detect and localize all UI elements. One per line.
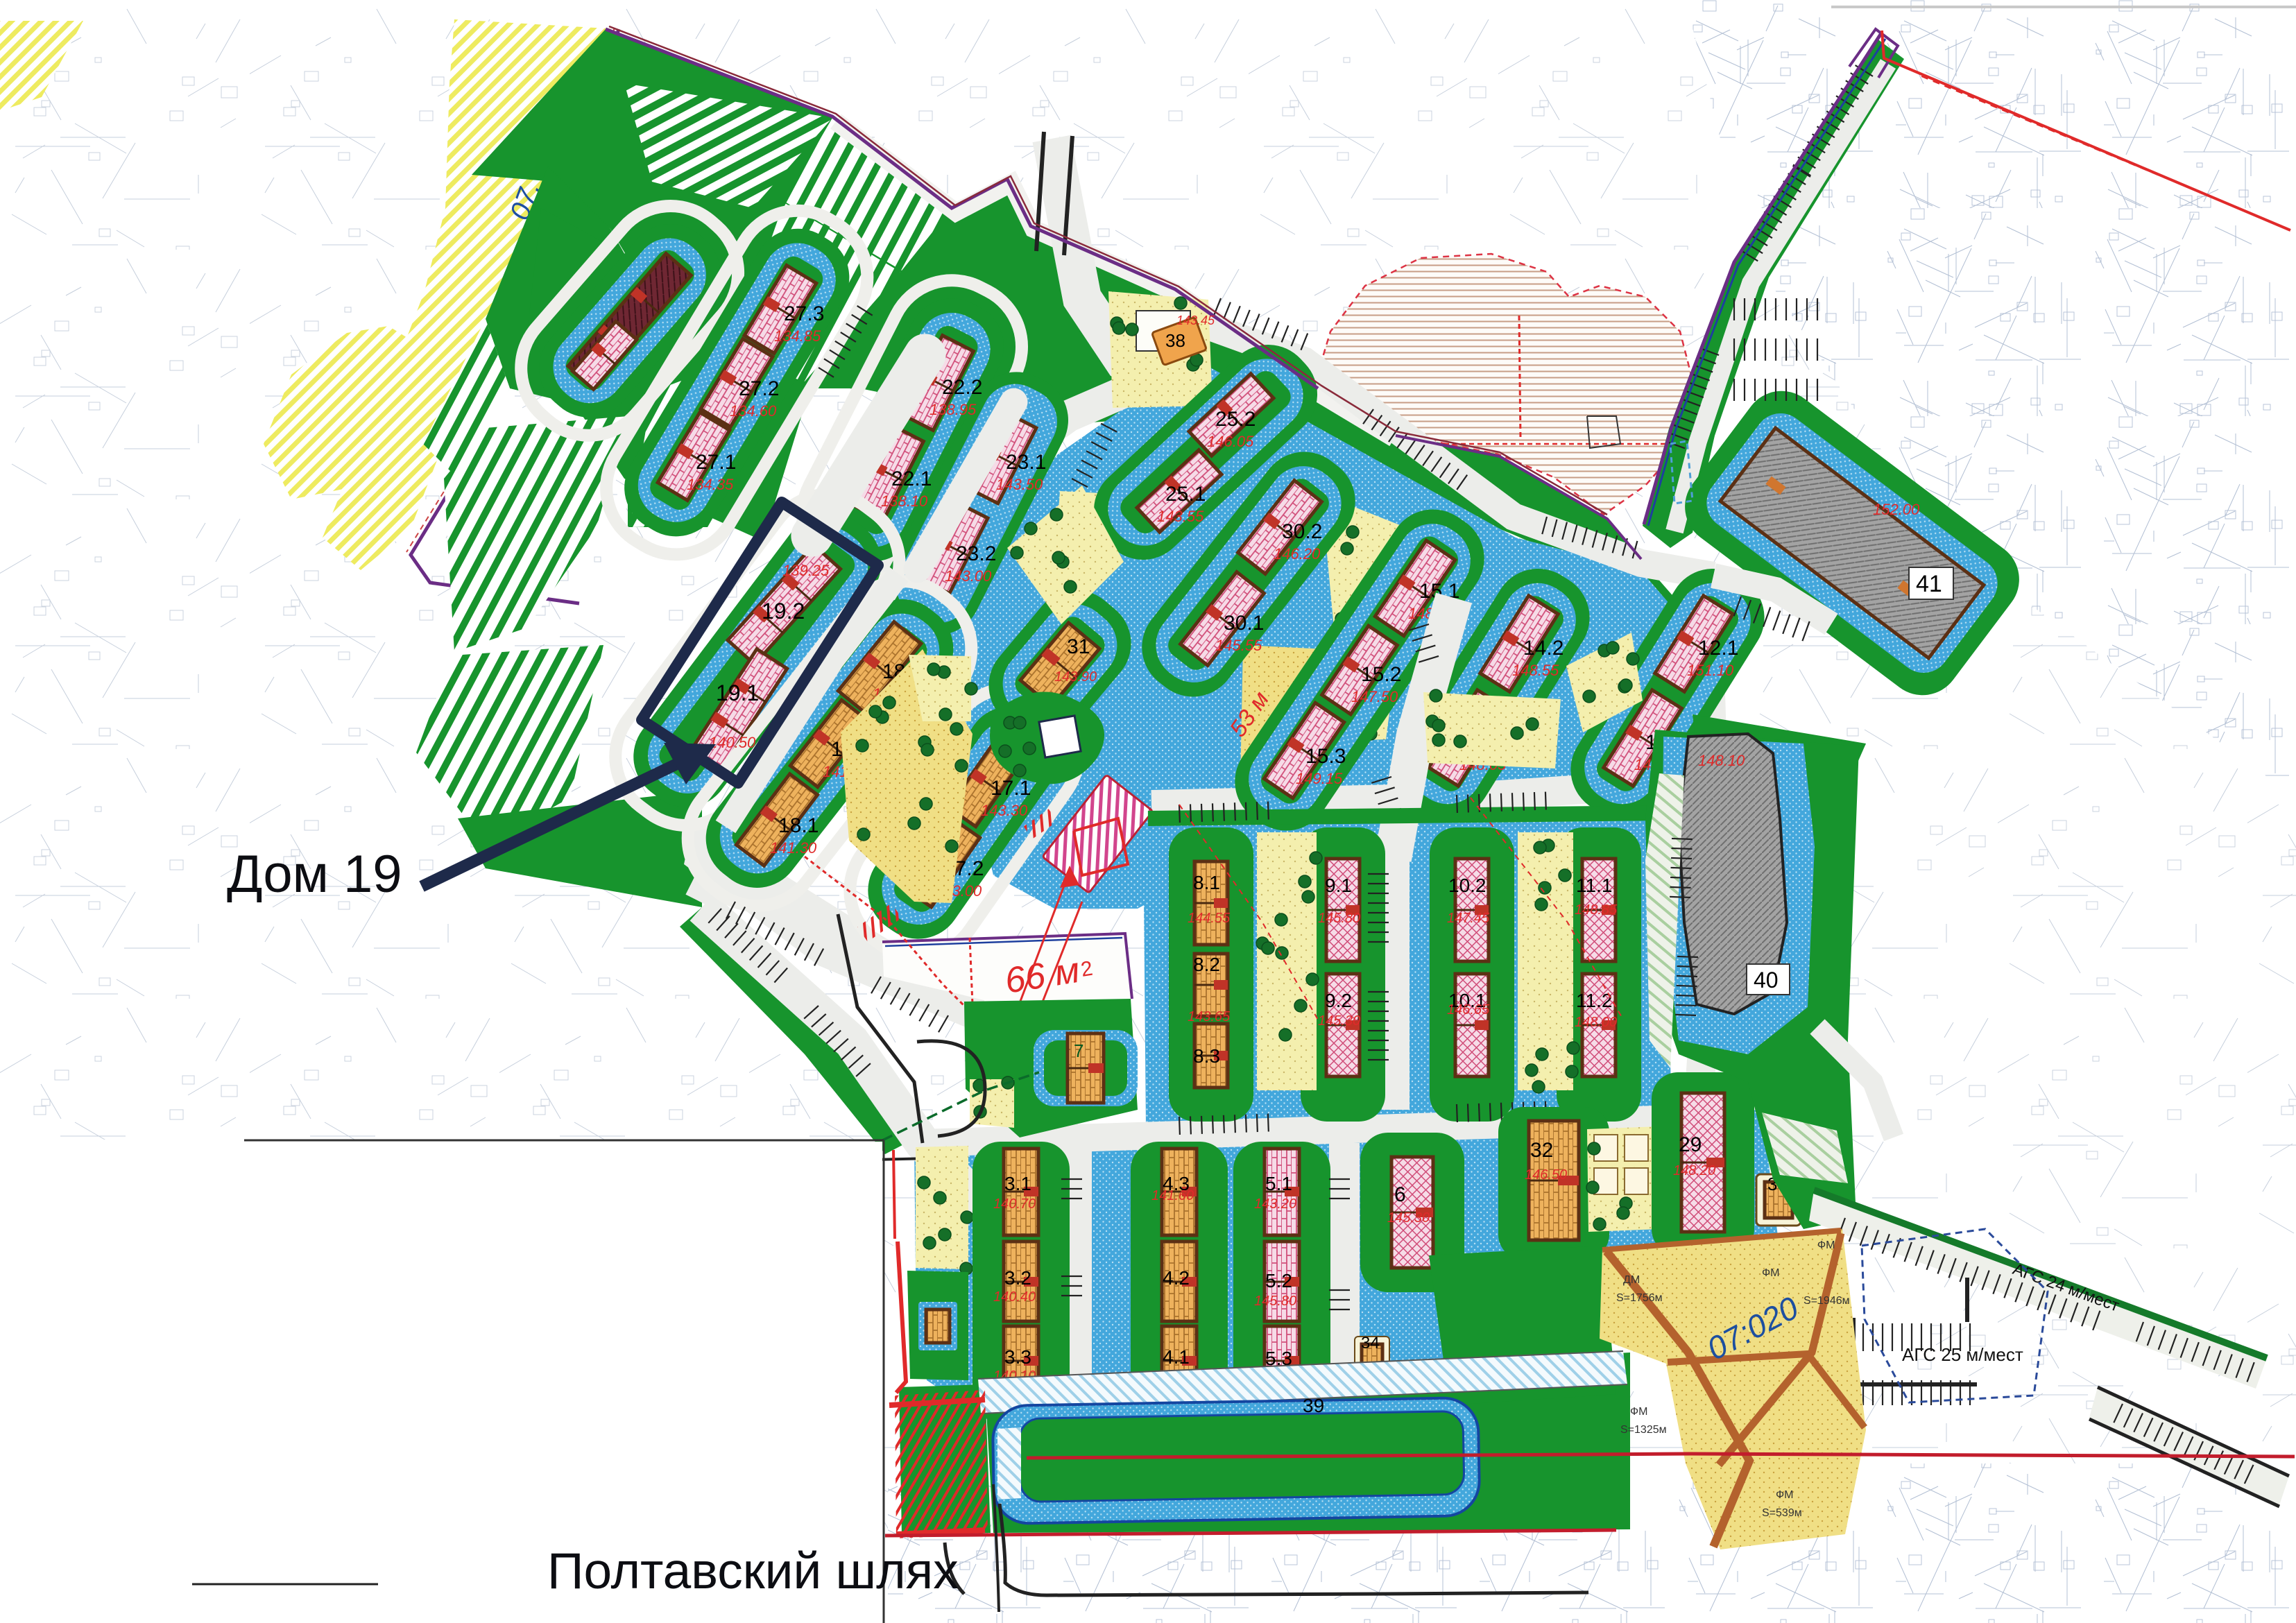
svg-text:146.05: 146.05 — [1207, 433, 1254, 450]
svg-text:27.1: 27.1 — [696, 451, 736, 474]
svg-text:138.10: 138.10 — [881, 492, 928, 510]
svg-text:143.45: 143.45 — [1176, 314, 1215, 327]
svg-text:22.2: 22.2 — [942, 376, 982, 399]
svg-text:147.50: 147.50 — [1351, 688, 1398, 705]
svg-text:4.2: 4.2 — [1163, 1267, 1190, 1289]
svg-text:140.50: 140.50 — [709, 734, 756, 751]
svg-text:23.1: 23.1 — [1006, 451, 1046, 474]
svg-text:14.2: 14.2 — [1523, 637, 1563, 660]
svg-text:11.1: 11.1 — [1576, 875, 1612, 896]
svg-text:143.30: 143.30 — [981, 802, 1028, 819]
svg-text:145.30: 145.30 — [1387, 1210, 1430, 1226]
svg-text:ДМ: ДМ — [1623, 1274, 1640, 1286]
svg-text:АГС 25 м/мест: АГС 25 м/мест — [1902, 1344, 2023, 1365]
svg-text:27.3: 27.3 — [784, 302, 824, 325]
svg-text:S=1756м: S=1756м — [1616, 1292, 1663, 1304]
svg-text:145.80: 145.80 — [1318, 911, 1360, 926]
svg-text:149.15: 149.15 — [1296, 770, 1343, 787]
svg-text:148.00: 148.00 — [1575, 1015, 1617, 1030]
svg-text:18.1: 18.1 — [778, 814, 819, 837]
svg-text:15.2: 15.2 — [1361, 663, 1401, 686]
svg-text:148.55: 148.55 — [1512, 662, 1559, 679]
svg-text:ФМ: ФМ — [1630, 1406, 1648, 1418]
svg-text:146.50: 146.50 — [1525, 1167, 1567, 1183]
svg-text:S=1946м: S=1946м — [1804, 1295, 1850, 1307]
svg-text:152.00: 152.00 — [1873, 501, 1920, 518]
svg-text:8.2: 8.2 — [1193, 954, 1220, 975]
svg-text:11.2: 11.2 — [1576, 990, 1612, 1011]
svg-text:5.1: 5.1 — [1265, 1173, 1292, 1194]
svg-text:134.60: 134.60 — [730, 402, 777, 420]
svg-text:145.30: 145.30 — [1318, 1013, 1360, 1029]
svg-text:S=539м: S=539м — [1762, 1507, 1802, 1519]
svg-text:7: 7 — [1074, 1040, 1083, 1061]
svg-text:12.1: 12.1 — [1698, 637, 1738, 660]
svg-text:3.3: 3.3 — [1004, 1346, 1031, 1368]
svg-text:39: 39 — [1303, 1395, 1324, 1416]
svg-text:138.95: 138.95 — [929, 401, 977, 418]
svg-text:143.65: 143.65 — [1188, 1009, 1231, 1024]
svg-text:ФМ: ФМ — [1776, 1489, 1794, 1501]
svg-text:3.2: 3.2 — [1004, 1267, 1031, 1289]
svg-text:146.20: 146.20 — [1274, 545, 1321, 563]
svg-text:Дом 19: Дом 19 — [227, 845, 402, 904]
svg-text:134.35: 134.35 — [687, 476, 734, 493]
svg-text:3.1: 3.1 — [1004, 1173, 1031, 1194]
svg-text:143.55: 143.55 — [1157, 508, 1204, 525]
svg-text:5.2: 5.2 — [1265, 1270, 1292, 1291]
svg-text:145.55: 145.55 — [1215, 637, 1262, 654]
svg-text:151.10: 151.10 — [1687, 662, 1734, 679]
svg-text:145.80: 145.80 — [1254, 1294, 1296, 1309]
svg-text:27.2: 27.2 — [739, 377, 779, 400]
svg-text:148.10: 148.10 — [1698, 752, 1745, 769]
svg-text:146.65: 146.65 — [1447, 1002, 1490, 1017]
svg-text:41: 41 — [1916, 571, 1942, 597]
svg-text:4.1: 4.1 — [1163, 1346, 1190, 1368]
svg-text:9.1: 9.1 — [1325, 875, 1352, 896]
svg-text:9.2: 9.2 — [1325, 990, 1352, 1011]
svg-text:148.20: 148.20 — [1673, 1163, 1715, 1178]
svg-text:8.3: 8.3 — [1193, 1045, 1220, 1067]
svg-text:19.2: 19.2 — [762, 599, 805, 624]
svg-text:Полтавский шлях: Полтавский шлях — [547, 1543, 959, 1599]
svg-text:147.45: 147.45 — [1447, 911, 1490, 926]
svg-text:S=1325м: S=1325м — [1620, 1424, 1667, 1436]
svg-text:38: 38 — [1165, 330, 1185, 351]
svg-text:30.1: 30.1 — [1224, 612, 1264, 635]
svg-text:19.1: 19.1 — [716, 680, 759, 705]
svg-text:148.85: 148.85 — [1575, 902, 1618, 918]
svg-text:144.55: 144.55 — [1188, 911, 1231, 926]
svg-text:34: 34 — [1361, 1334, 1380, 1352]
svg-text:134.85: 134.85 — [774, 327, 821, 345]
svg-text:23.2: 23.2 — [956, 542, 996, 565]
svg-text:143.00: 143.00 — [945, 567, 992, 585]
svg-text:17.1: 17.1 — [991, 777, 1031, 800]
svg-text:25.1: 25.1 — [1165, 483, 1206, 506]
svg-text:22.1: 22.1 — [891, 467, 932, 490]
svg-text:15.3: 15.3 — [1305, 745, 1346, 768]
svg-text:ФМ: ФМ — [1817, 1239, 1835, 1251]
svg-text:31: 31 — [1067, 635, 1090, 658]
svg-text:141.30: 141.30 — [770, 839, 817, 857]
svg-text:140.70: 140.70 — [993, 1196, 1036, 1212]
svg-text:140.40: 140.40 — [993, 1289, 1036, 1305]
svg-text:40: 40 — [1754, 968, 1779, 993]
svg-text:6: 6 — [1394, 1183, 1406, 1206]
svg-text:10.2: 10.2 — [1448, 875, 1487, 896]
svg-text:143.90: 143.90 — [1054, 669, 1097, 685]
svg-text:ФМ: ФМ — [1762, 1267, 1780, 1279]
svg-text:8.1: 8.1 — [1193, 872, 1220, 893]
svg-text:143.50: 143.50 — [996, 476, 1043, 493]
svg-text:32: 32 — [1530, 1139, 1553, 1162]
svg-text:25.2: 25.2 — [1215, 408, 1256, 431]
svg-text:143.20: 143.20 — [1254, 1196, 1296, 1212]
svg-text:30.2: 30.2 — [1282, 520, 1322, 543]
svg-text:29: 29 — [1679, 1133, 1702, 1156]
svg-text:139.25: 139.25 — [782, 562, 830, 579]
svg-text:141.60: 141.60 — [1151, 1188, 1194, 1203]
